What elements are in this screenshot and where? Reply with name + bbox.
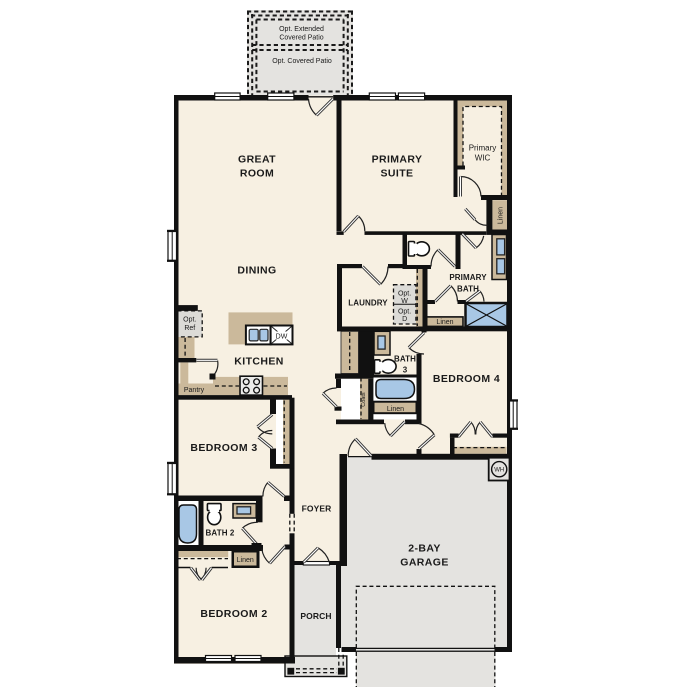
svg-text:Covered Patio: Covered Patio bbox=[279, 34, 323, 41]
svg-text:WIC: WIC bbox=[475, 154, 491, 163]
svg-text:BATH 2: BATH 2 bbox=[206, 529, 235, 538]
svg-text:GREAT: GREAT bbox=[238, 154, 276, 166]
svg-text:D: D bbox=[402, 316, 407, 323]
svg-text:BEDROOM 3: BEDROOM 3 bbox=[190, 442, 257, 454]
svg-text:ROOM: ROOM bbox=[240, 168, 274, 180]
svg-text:PORCH: PORCH bbox=[300, 611, 331, 621]
svg-text:3: 3 bbox=[403, 366, 408, 375]
svg-text:KITCHEN: KITCHEN bbox=[234, 356, 283, 368]
svg-text:Opt.: Opt. bbox=[398, 309, 411, 316]
svg-text:Primary: Primary bbox=[469, 144, 497, 153]
svg-text:Pantry: Pantry bbox=[184, 387, 205, 394]
svg-text:Linen: Linen bbox=[237, 557, 254, 564]
svg-text:W: W bbox=[401, 298, 408, 305]
svg-text:Linen: Linen bbox=[436, 319, 453, 326]
svg-text:GARAGE: GARAGE bbox=[400, 557, 449, 569]
svg-text:Opt. Extended: Opt. Extended bbox=[279, 26, 324, 33]
svg-text:Linen: Linen bbox=[498, 207, 505, 224]
svg-text:DW: DW bbox=[276, 333, 288, 340]
svg-text:Ref: Ref bbox=[184, 325, 195, 332]
svg-text:BATH: BATH bbox=[394, 355, 416, 364]
svg-text:Opt.: Opt. bbox=[398, 291, 411, 298]
svg-text:2-BAY: 2-BAY bbox=[408, 543, 441, 555]
svg-text:BEDROOM 2: BEDROOM 2 bbox=[200, 608, 267, 620]
svg-text:LAUNDRY: LAUNDRY bbox=[348, 299, 388, 308]
svg-text:Linen: Linen bbox=[387, 406, 404, 413]
svg-text:Opt. Covered Patio: Opt. Covered Patio bbox=[272, 58, 332, 65]
svg-text:BATH: BATH bbox=[457, 285, 479, 294]
svg-text:Opt.: Opt. bbox=[183, 316, 196, 323]
svg-text:SUITE: SUITE bbox=[381, 168, 414, 180]
svg-text:DINING: DINING bbox=[237, 265, 276, 277]
svg-text:Coats: Coats bbox=[361, 392, 367, 407]
svg-text:PRIMARY: PRIMARY bbox=[449, 273, 487, 282]
svg-text:PRIMARY: PRIMARY bbox=[372, 154, 423, 166]
svg-text:WH: WH bbox=[494, 467, 504, 473]
svg-text:FOYER: FOYER bbox=[302, 504, 332, 514]
svg-text:BEDROOM 4: BEDROOM 4 bbox=[433, 373, 500, 385]
